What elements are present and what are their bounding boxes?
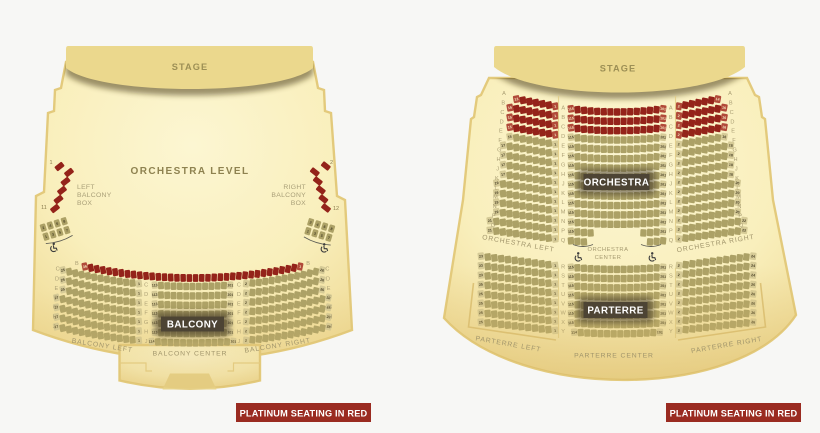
svg-text:115: 115	[568, 201, 574, 206]
svg-text:16: 16	[722, 135, 727, 140]
svg-text:ORCHESTRA: ORCHESTRA	[588, 247, 629, 253]
svg-text:F: F	[561, 153, 565, 159]
svg-text:C: C	[730, 110, 734, 116]
svg-text:Q: Q	[491, 223, 496, 229]
svg-text:D: D	[730, 119, 734, 125]
svg-text:115: 115	[568, 192, 574, 197]
svg-text:D: D	[669, 134, 673, 140]
svg-text:K: K	[669, 191, 673, 197]
svg-text:E: E	[669, 144, 673, 150]
svg-text:C: C	[669, 125, 673, 131]
svg-text:RIGHT: RIGHT	[283, 184, 306, 191]
svg-text:1: 1	[49, 160, 52, 166]
svg-text:N: N	[737, 204, 741, 210]
svg-text:17: 17	[501, 153, 506, 158]
svg-text:15: 15	[508, 106, 513, 111]
svg-text:16: 16	[722, 115, 727, 120]
svg-text:BOX: BOX	[291, 200, 306, 207]
svg-text:P: P	[738, 214, 742, 220]
svg-text:B: B	[669, 115, 673, 121]
svg-text:101: 101	[660, 126, 666, 131]
svg-text:16: 16	[722, 125, 727, 130]
svg-text:F: F	[669, 153, 673, 159]
svg-text:H: H	[496, 157, 500, 163]
svg-text:K: K	[561, 191, 565, 197]
svg-text:A: A	[502, 91, 506, 97]
svg-text:H: H	[561, 172, 565, 178]
svg-text:101: 101	[660, 210, 666, 215]
svg-text:L: L	[562, 200, 565, 206]
svg-text:B: B	[561, 115, 565, 121]
svg-text:115: 115	[568, 211, 574, 216]
svg-text:M: M	[493, 195, 498, 201]
svg-text:BOX: BOX	[77, 200, 92, 207]
svg-text:D: D	[561, 134, 565, 140]
svg-text:L: L	[495, 185, 498, 191]
svg-text:G: G	[561, 163, 565, 169]
svg-text:115: 115	[568, 220, 574, 225]
svg-text:BALCONY CENTER: BALCONY CENTER	[153, 351, 228, 358]
svg-text:H: H	[733, 157, 737, 163]
svg-text:115: 115	[568, 126, 574, 131]
svg-text:G: G	[733, 148, 737, 154]
svg-text:C: C	[500, 110, 504, 116]
svg-text:N: N	[561, 219, 565, 225]
svg-text:Q: Q	[669, 238, 674, 244]
svg-text:E: E	[499, 129, 503, 135]
svg-text:18: 18	[729, 153, 734, 158]
svg-text:Q: Q	[561, 238, 566, 244]
svg-text:M: M	[561, 210, 566, 216]
svg-text:115: 115	[568, 116, 574, 121]
svg-text:101: 101	[660, 201, 666, 206]
svg-text:PARTERRE: PARTERRE	[587, 306, 643, 317]
svg-text:115: 115	[568, 229, 574, 234]
svg-text:18: 18	[729, 172, 734, 177]
svg-text:PLATINUM SEATING IN RED: PLATINUM SEATING IN RED	[670, 409, 798, 419]
svg-text:101: 101	[660, 154, 666, 159]
svg-text:K: K	[735, 176, 739, 182]
svg-text:115: 115	[568, 173, 574, 178]
svg-text:101: 101	[660, 135, 666, 140]
svg-text:J: J	[562, 181, 565, 187]
svg-text:E: E	[731, 129, 735, 135]
svg-text:F: F	[732, 138, 736, 144]
svg-text:P: P	[669, 229, 673, 235]
svg-text:PLATINUM SEATING IN RED: PLATINUM SEATING IN RED	[240, 409, 368, 419]
svg-text:LEFT: LEFT	[77, 184, 95, 191]
svg-text:M: M	[736, 195, 741, 201]
svg-text:F: F	[498, 138, 502, 144]
svg-text:15: 15	[507, 135, 512, 140]
svg-text:J: J	[669, 181, 672, 187]
svg-text:12: 12	[333, 206, 339, 212]
svg-text:18: 18	[729, 163, 734, 168]
svg-text:D: D	[500, 119, 504, 125]
svg-text:J: J	[496, 166, 499, 172]
svg-text:G: G	[669, 163, 673, 169]
svg-text:J: J	[735, 166, 738, 172]
svg-text:17: 17	[501, 163, 506, 168]
svg-text:P: P	[492, 214, 496, 220]
svg-text:L: L	[669, 200, 672, 206]
svg-text:PARTERRE CENTER: PARTERRE CENTER	[574, 353, 654, 360]
svg-text:N: N	[669, 219, 673, 225]
svg-text:B: B	[501, 100, 505, 106]
svg-text:13: 13	[514, 97, 519, 102]
svg-text:E: E	[561, 144, 565, 150]
svg-text:101: 101	[660, 173, 666, 178]
svg-text:101: 101	[660, 145, 666, 150]
svg-text:L: L	[736, 185, 739, 191]
svg-text:115: 115	[568, 163, 574, 168]
svg-text:115: 115	[568, 145, 574, 150]
svg-text:15: 15	[508, 115, 513, 120]
svg-text:BALCONY: BALCONY	[167, 320, 218, 331]
svg-text:STAGE: STAGE	[172, 62, 208, 72]
svg-text:A: A	[669, 106, 673, 112]
svg-text:101: 101	[660, 107, 666, 112]
svg-text:115: 115	[568, 182, 574, 187]
svg-text:101: 101	[660, 116, 666, 121]
svg-text:N: N	[493, 204, 497, 210]
svg-text:Q: Q	[739, 223, 744, 229]
svg-text:BALCONY: BALCONY	[77, 192, 112, 199]
svg-text:A: A	[728, 91, 732, 97]
svg-text:B: B	[729, 100, 733, 106]
svg-text:ORCHESTRA LEVEL: ORCHESTRA LEVEL	[131, 166, 250, 177]
svg-text:101: 101	[660, 182, 666, 187]
svg-text:P: P	[561, 229, 565, 235]
svg-text:17: 17	[501, 172, 506, 177]
svg-text:C: C	[561, 125, 565, 131]
svg-text:14: 14	[715, 97, 720, 102]
svg-text:M: M	[669, 210, 674, 216]
svg-text:G: G	[497, 148, 501, 154]
svg-text:101: 101	[660, 229, 666, 234]
svg-text:ORCHESTRA: ORCHESTRA	[584, 178, 650, 189]
svg-text:101: 101	[660, 192, 666, 197]
svg-text:K: K	[495, 176, 499, 182]
svg-text:115: 115	[568, 154, 574, 159]
svg-text:11: 11	[41, 205, 47, 211]
svg-text:A: A	[561, 106, 565, 112]
svg-text:115: 115	[568, 107, 574, 112]
svg-text:15: 15	[508, 125, 513, 130]
svg-text:H: H	[669, 172, 673, 178]
svg-text:2: 2	[330, 160, 333, 166]
svg-text:STAGE: STAGE	[600, 64, 636, 74]
svg-text:101: 101	[660, 220, 666, 225]
svg-text:16: 16	[722, 106, 727, 111]
svg-text:101: 101	[660, 163, 666, 168]
svg-text:115: 115	[568, 135, 574, 140]
svg-text:BALCONY: BALCONY	[271, 192, 306, 199]
svg-text:CENTER: CENTER	[595, 255, 622, 261]
